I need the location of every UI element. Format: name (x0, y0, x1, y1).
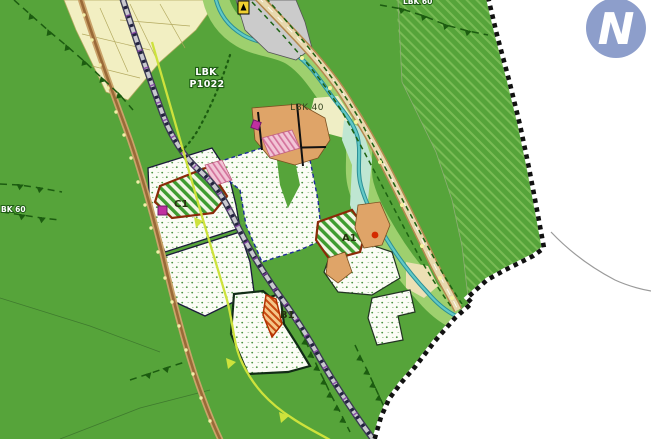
magenta-marker-west (158, 206, 167, 215)
label-zone-a1: A1 (342, 233, 357, 244)
red-dot-marker (372, 232, 379, 239)
logo-letter: N (598, 4, 635, 55)
label-zone-b1: B1 (280, 310, 295, 321)
label-zone-c1: C1 (174, 199, 188, 210)
map-viewport[interactable]: LBK 40 LBK P1022 BK 60 LBK 60 C1 A1 B1 N (0, 0, 651, 439)
label-lbk-p1022-line2: P1022 (190, 79, 225, 90)
map-canvas[interactable]: LBK 40 LBK P1022 BK 60 LBK 60 C1 A1 B1 N (0, 0, 651, 439)
monument-icon (238, 1, 249, 14)
label-lbk-p1022-line1: LBK (195, 67, 217, 78)
north-logo: N (586, 0, 646, 58)
label-lbk40: LBK 40 (290, 103, 324, 113)
label-lbk60-left: BK 60 (1, 205, 26, 214)
label-lbk60-top: LBK 60 (403, 0, 432, 6)
